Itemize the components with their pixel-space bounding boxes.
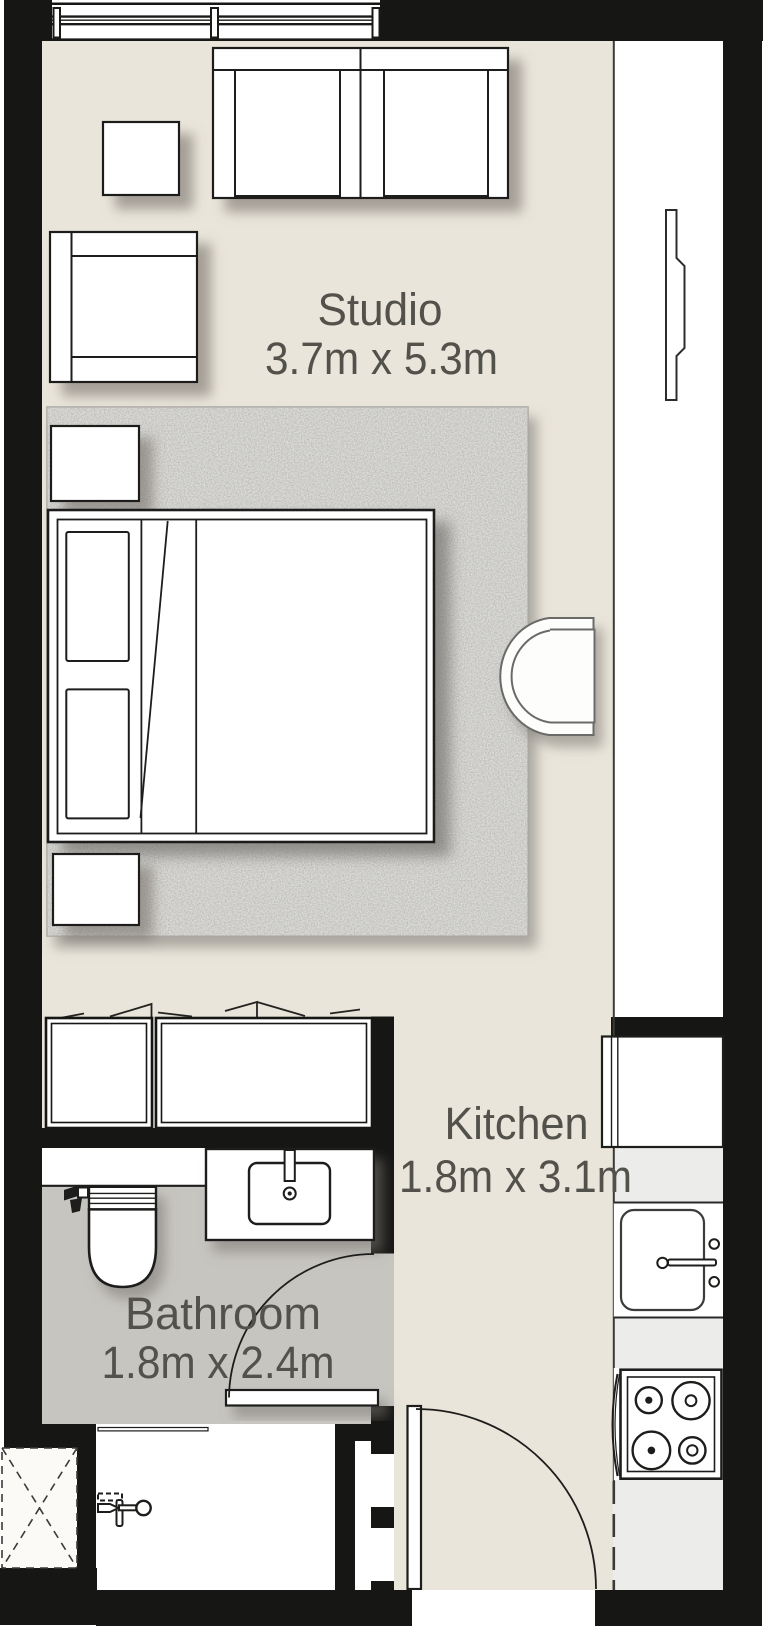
svg-text:3.7m x 5.3m: 3.7m x 5.3m <box>265 333 498 384</box>
svg-text:Studio: Studio <box>318 284 443 335</box>
svg-text:1.8m x 3.1m: 1.8m x 3.1m <box>399 1151 632 1202</box>
svg-text:Bathroom: Bathroom <box>125 1288 321 1339</box>
svg-text:Kitchen: Kitchen <box>445 1098 589 1149</box>
svg-text:1.8m x 2.4m: 1.8m x 2.4m <box>102 1337 335 1388</box>
